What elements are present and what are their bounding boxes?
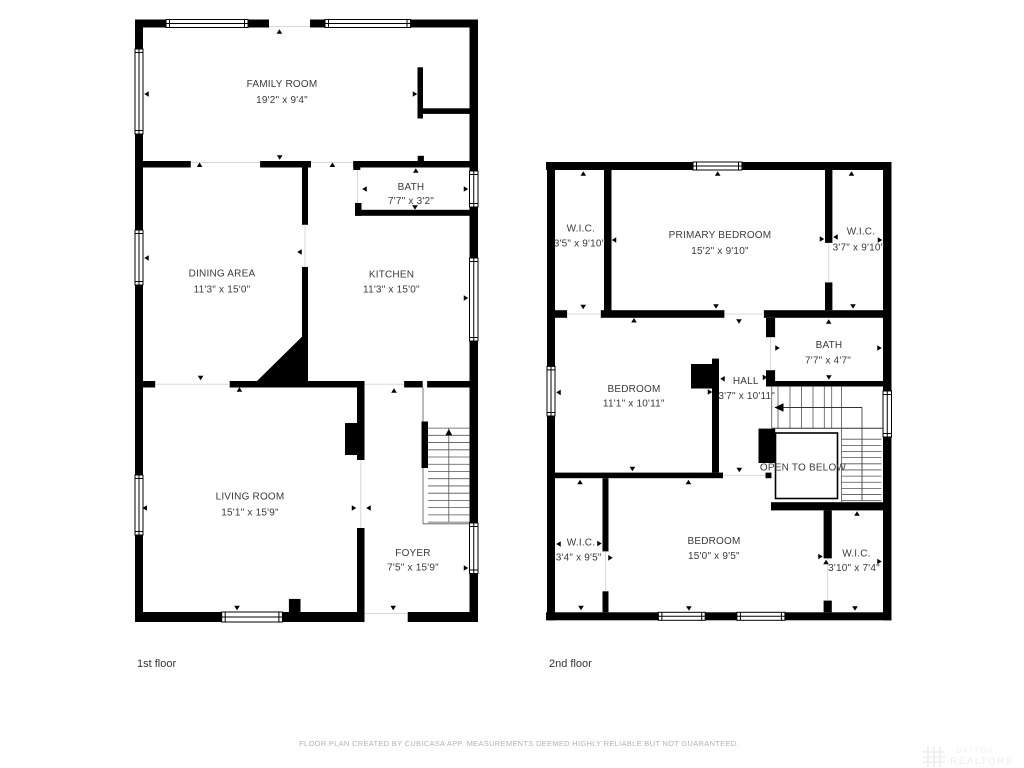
svg-text:11'3" x 15'0": 11'3" x 15'0"	[363, 285, 420, 296]
svg-text:FLOOR PLAN CREATED BY CUBICASA: FLOOR PLAN CREATED BY CUBICASA APP. MEAS…	[299, 739, 739, 748]
svg-text:3'5" x 9'10": 3'5" x 9'10"	[554, 239, 606, 250]
svg-text:15'1" x 15'9": 15'1" x 15'9"	[221, 508, 279, 519]
svg-text:BEDROOM: BEDROOM	[607, 384, 660, 395]
svg-text:HALL: HALL	[733, 376, 759, 387]
svg-text:W.I.C.: W.I.C.	[842, 549, 870, 560]
svg-text:FOYER: FOYER	[395, 548, 430, 559]
svg-text:W.I.C.: W.I.C.	[847, 227, 875, 238]
svg-text:LIVING ROOM: LIVING ROOM	[216, 492, 285, 503]
svg-text:BATH: BATH	[816, 340, 843, 351]
svg-text:15'2" x 9'10": 15'2" x 9'10"	[691, 246, 749, 257]
svg-text:3'10" x 7'4": 3'10" x 7'4"	[828, 563, 880, 574]
svg-text:7'5" x 15'9": 7'5" x 15'9"	[387, 563, 439, 574]
svg-text:W.I.C.: W.I.C.	[567, 538, 595, 549]
svg-text:7'7" x 3'2": 7'7" x 3'2"	[388, 196, 434, 207]
svg-text:PRIMARY BEDROOM: PRIMARY BEDROOM	[669, 230, 772, 241]
svg-text:15'0" x 9'5": 15'0" x 9'5"	[688, 551, 740, 562]
svg-text:7'7" x 4'7": 7'7" x 4'7"	[805, 356, 851, 367]
svg-text:11'1" x 10'11": 11'1" x 10'11"	[603, 399, 665, 410]
svg-text:DAYTON: DAYTON	[956, 746, 994, 755]
svg-text:DINING AREA: DINING AREA	[189, 269, 256, 280]
svg-text:19'2" x 9'4": 19'2" x 9'4"	[256, 95, 308, 106]
svg-text:3'7" x 10'11": 3'7" x 10'11"	[718, 391, 775, 402]
svg-text:2nd floor: 2nd floor	[549, 658, 592, 670]
svg-text:BATH: BATH	[398, 182, 425, 193]
svg-text:11'3" x 15'0": 11'3" x 15'0"	[194, 285, 251, 296]
svg-text:OPEN TO BELOW: OPEN TO BELOW	[760, 463, 847, 474]
svg-text:1st floor: 1st floor	[137, 658, 176, 670]
svg-text:3'7" x 9'10": 3'7" x 9'10"	[833, 243, 885, 254]
svg-text:KITCHEN: KITCHEN	[369, 270, 414, 281]
svg-text:W.I.C.: W.I.C.	[567, 224, 595, 235]
svg-text:3'4" x 9'5": 3'4" x 9'5"	[556, 552, 602, 563]
svg-text:REALTORS: REALTORS	[950, 756, 1013, 767]
svg-text:BEDROOM: BEDROOM	[687, 536, 740, 547]
svg-text:FAMILY ROOM: FAMILY ROOM	[247, 79, 318, 90]
